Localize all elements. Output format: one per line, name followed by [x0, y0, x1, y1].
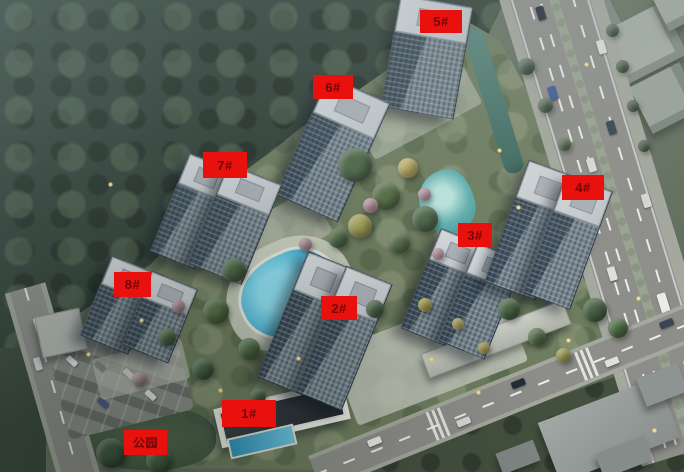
- tree: [556, 348, 571, 363]
- streetlight-glow: [296, 356, 301, 361]
- blossom-tree: [172, 300, 185, 313]
- streetlight-glow: [108, 182, 113, 187]
- blossom-tree: [418, 188, 431, 201]
- streetlight-glow: [652, 428, 657, 433]
- tree: [158, 328, 176, 346]
- streetlight-glow: [636, 296, 641, 301]
- tree: [418, 298, 432, 312]
- car: [606, 120, 618, 136]
- streetlight-glow: [516, 205, 521, 210]
- streetlight-glow: [139, 318, 144, 323]
- tree: [606, 24, 619, 37]
- tree: [627, 100, 639, 112]
- tree: [538, 98, 553, 113]
- tree: [608, 318, 628, 338]
- parked-car: [66, 355, 79, 367]
- car: [596, 39, 608, 55]
- crosswalk: [426, 407, 451, 440]
- car: [367, 436, 383, 448]
- tree: [616, 60, 629, 73]
- blossom-tree: [432, 248, 444, 260]
- building-label-3: 3#: [458, 223, 492, 247]
- parked-car: [144, 389, 157, 401]
- park-label: 公园: [124, 430, 167, 455]
- tree: [203, 298, 229, 324]
- car: [586, 157, 598, 173]
- building-label-1: 1#: [222, 400, 276, 427]
- streetlight-glow: [566, 338, 571, 343]
- tree: [498, 298, 520, 320]
- building-label-2: 2#: [321, 296, 357, 320]
- tree: [238, 338, 260, 360]
- streetlight-glow: [476, 390, 481, 395]
- tree: [388, 232, 410, 254]
- streetlight-glow: [218, 388, 223, 393]
- building-label-5: 5#: [420, 10, 462, 33]
- tree: [96, 438, 126, 468]
- building-label-8: 8#: [114, 272, 151, 297]
- tree: [222, 258, 246, 282]
- tree: [528, 328, 546, 346]
- blossom-tree: [132, 372, 147, 387]
- tree: [583, 298, 607, 322]
- car: [604, 356, 620, 368]
- tree: [192, 358, 214, 380]
- crosswalk: [574, 347, 599, 380]
- car: [511, 378, 527, 390]
- tree: [412, 206, 438, 232]
- tree: [452, 318, 464, 330]
- tree: [366, 300, 384, 318]
- car: [659, 318, 675, 330]
- blossom-tree: [299, 238, 312, 251]
- car: [33, 357, 43, 371]
- tree: [638, 140, 650, 152]
- tree: [478, 342, 490, 354]
- building-label-4: 4#: [562, 175, 604, 200]
- tree: [338, 148, 372, 182]
- tree: [328, 228, 348, 248]
- car: [640, 193, 652, 209]
- car: [456, 416, 472, 428]
- streetlight-glow: [86, 352, 91, 357]
- car: [535, 5, 547, 21]
- building-label-7: 7#: [203, 152, 247, 178]
- tree: [348, 214, 372, 238]
- streetlight-glow: [584, 62, 589, 67]
- blossom-tree: [363, 198, 378, 213]
- tree: [398, 158, 418, 178]
- streetlight-glow: [497, 148, 502, 153]
- streetlight-glow: [429, 357, 434, 362]
- tree: [558, 138, 571, 151]
- tree: [518, 58, 535, 75]
- aerial-site-rendering: 1# 2# 3# 4# 5# 6# 7# 8# 公园: [0, 0, 684, 472]
- car: [606, 266, 618, 282]
- building-label-6: 6#: [313, 75, 353, 99]
